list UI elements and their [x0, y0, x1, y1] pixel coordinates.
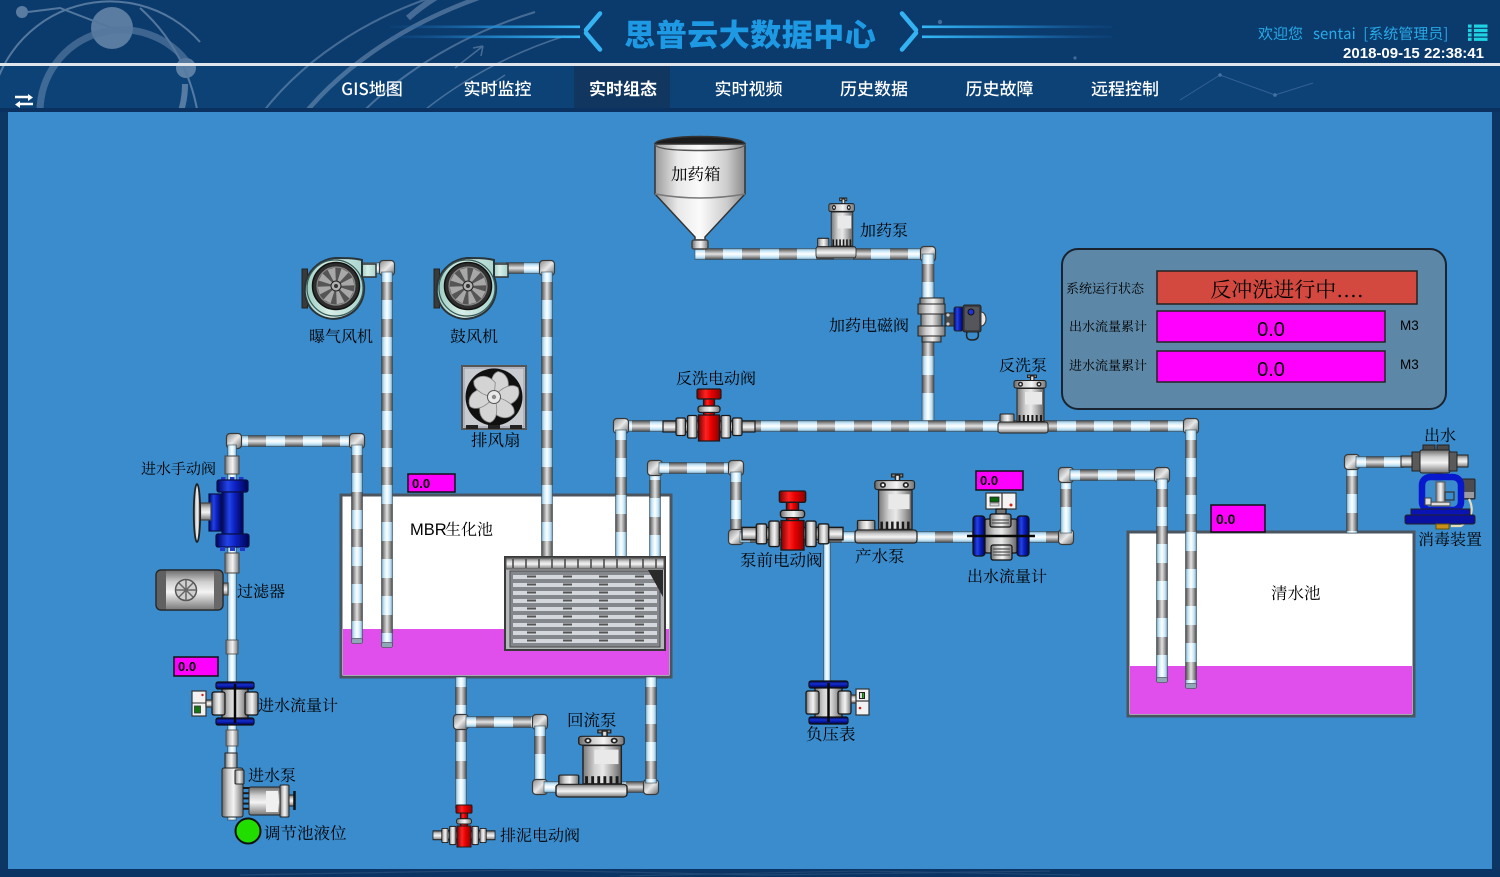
- svg-text:0.0: 0.0: [1257, 359, 1285, 381]
- svg-text:2018-09-15 22:38:41: 2018-09-15 22:38:41: [1343, 45, 1484, 62]
- svg-text:0.0: 0.0: [1216, 511, 1236, 527]
- svg-text:0.0: 0.0: [1257, 319, 1285, 341]
- svg-text:0.0: 0.0: [980, 473, 998, 488]
- svg-text:M3: M3: [1400, 318, 1419, 333]
- svg-text:0.0: 0.0: [178, 659, 196, 674]
- svg-text:0.0: 0.0: [412, 476, 430, 491]
- svg-text:MBR: MBR: [410, 521, 447, 539]
- svg-text:M3: M3: [1400, 357, 1419, 372]
